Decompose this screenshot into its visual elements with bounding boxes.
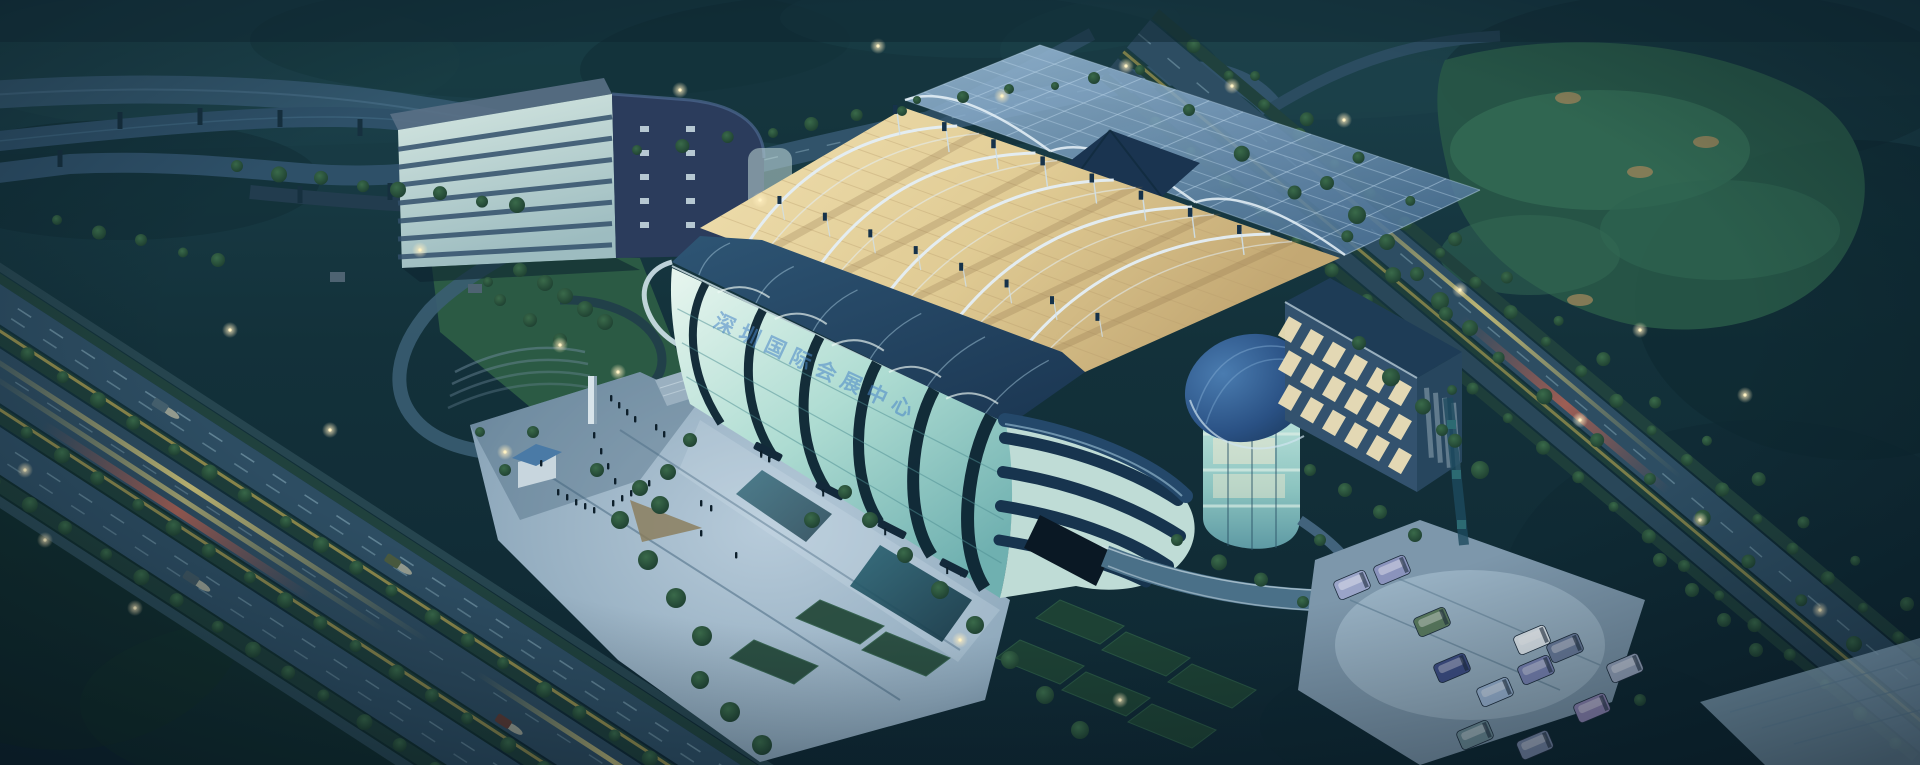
vignette-overlay (0, 0, 1920, 765)
architectural-rendering: 深圳国际会展中心 (0, 0, 1920, 765)
top-shade (0, 0, 1920, 42)
rendering-canvas: 深圳国际会展中心 (0, 0, 1920, 765)
